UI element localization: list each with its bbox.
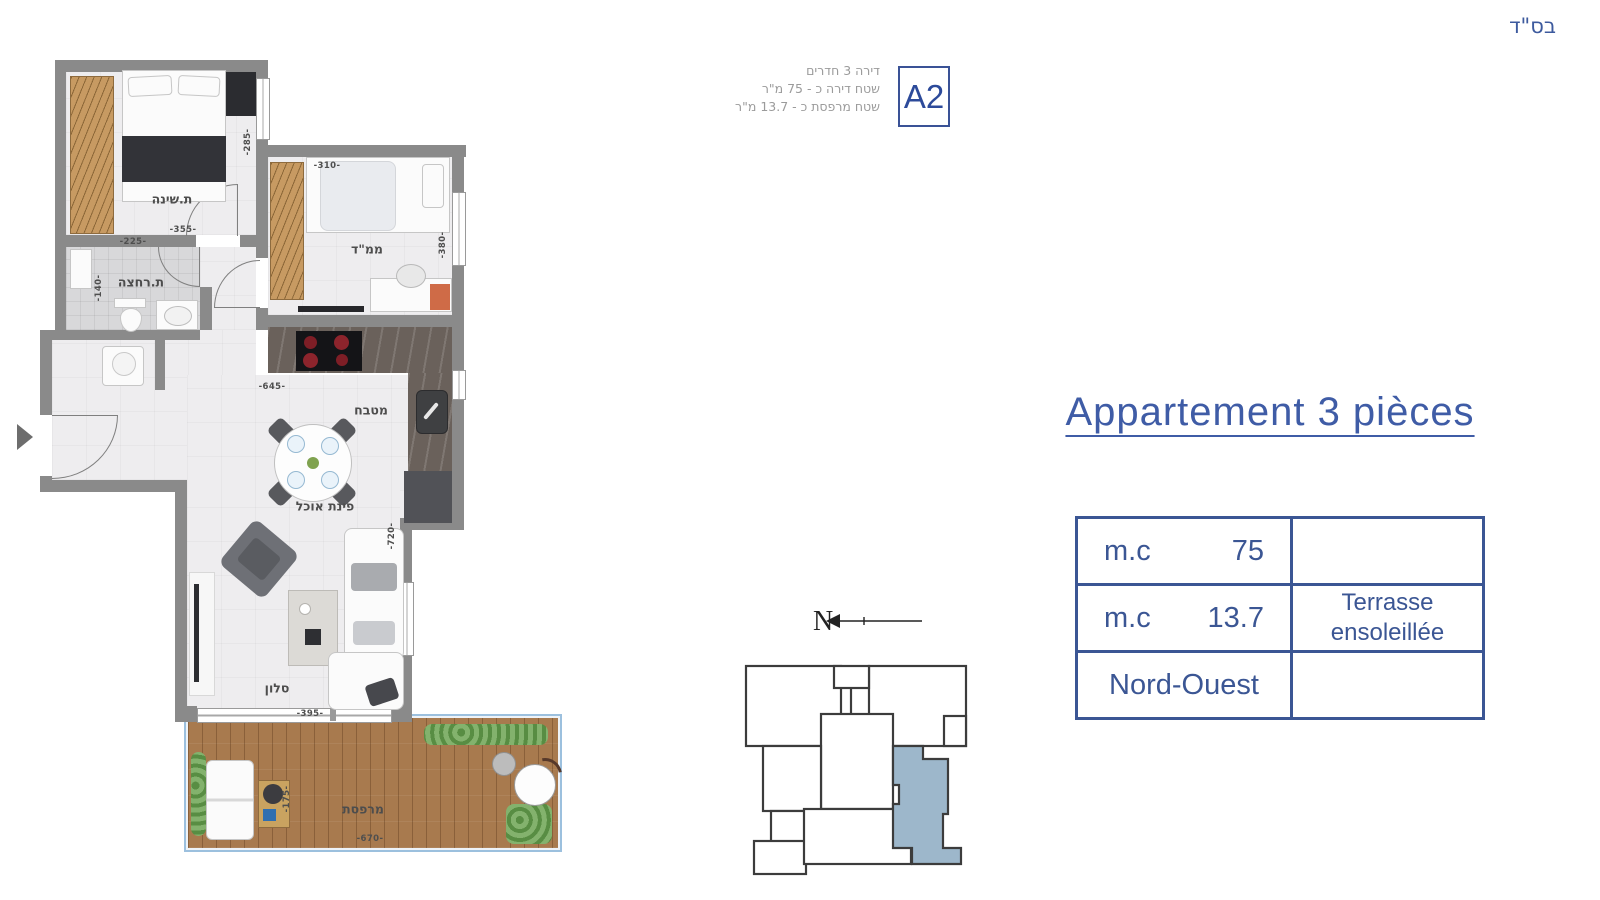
single-bed-duvet <box>320 161 396 231</box>
terrace-planter-corner <box>506 804 552 844</box>
pillow-right <box>178 75 221 97</box>
plate-1 <box>287 435 305 453</box>
wall-mamad-bottom <box>256 315 464 327</box>
wall-living-bottom-post-left <box>175 706 197 722</box>
dim-kitchen-width: -645- <box>259 382 286 392</box>
kitchen-sink <box>416 390 448 434</box>
terrace-planter-top <box>424 724 548 745</box>
terrace-planter-left <box>191 752 206 836</box>
dim-living-height: -720- <box>387 523 397 550</box>
mamad-chair <box>396 264 426 288</box>
page: בס"ד דירה 3 חדרים שטח דירה כ - 75 מ"ר שט… <box>0 0 1600 900</box>
dim-bathroom-width: -225- <box>120 237 147 247</box>
sofa-chaise <box>328 652 404 710</box>
wall-bathroom-right <box>200 287 212 330</box>
spec-row2-note: Terrasse ensoleillée <box>1293 586 1482 650</box>
page-title: Appartement 3 pièces <box>1050 390 1490 435</box>
spec-row1-note <box>1293 519 1482 583</box>
sofa-cushion-1 <box>351 563 397 591</box>
pillow-left <box>128 75 173 97</box>
dining-label: פינת אוכל <box>296 499 355 514</box>
burner-3 <box>303 353 318 368</box>
coffee-table-tray <box>305 629 321 645</box>
fridge <box>404 471 452 523</box>
plate-3 <box>287 471 305 489</box>
wall-mamad-top <box>256 145 466 157</box>
plate-4 <box>321 471 339 489</box>
bedroom-label: ת.שינה <box>152 192 193 207</box>
spec-row2-value: 13.7 <box>1208 602 1264 635</box>
wall-left-upper <box>55 60 66 330</box>
wall-living-left <box>175 480 187 718</box>
dim-living-width: -395- <box>297 709 324 719</box>
wall-outer-left-lower <box>40 330 52 415</box>
wall-right-a <box>452 145 464 192</box>
dim-bedroom-width: -355- <box>170 225 197 235</box>
spec-row3-left: Nord-Ouest <box>1078 653 1290 717</box>
burner-2 <box>334 335 349 350</box>
stove <box>296 331 362 371</box>
plate-2 <box>321 437 339 455</box>
wall-bedroom-bottom-b <box>240 235 256 247</box>
sofa-cushion-2 <box>353 621 395 645</box>
wall-hall-bottom <box>40 480 180 492</box>
unit-desc-line3: שטח מרפסת כ - 13.7 מ"ר <box>690 98 880 116</box>
highlighted-unit <box>893 746 961 864</box>
north-arrow: N <box>813 606 922 637</box>
dim-mamad-width: -310- <box>314 161 341 171</box>
unit-description: דירה 3 חדרים שטח דירה כ - 75 מ"ר שטח מרפ… <box>690 62 880 116</box>
entry-opening <box>40 415 52 478</box>
unit-desc-line2: שטח דירה כ - 75 מ"ר <box>690 80 880 98</box>
washing-machine-door <box>112 352 136 376</box>
dining-table <box>274 424 352 502</box>
armchair-seat <box>236 537 281 582</box>
dim-mamad-height: -380- <box>438 232 448 259</box>
bathtub <box>70 249 92 289</box>
bedroom-wardrobe <box>70 76 114 234</box>
spec-table: m.c 75 m.c 13.7 Terrasse ensoleillée Nor… <box>1075 516 1485 720</box>
spec-row3-note <box>1293 653 1482 717</box>
burner-1 <box>304 336 317 349</box>
kitchen-label: מטבח <box>354 403 388 418</box>
wall-right-c <box>452 398 464 525</box>
bbq-box <box>263 809 276 821</box>
terrace-label: מרפסת <box>342 802 384 817</box>
mamad-shelf <box>430 284 450 310</box>
bedroom-window <box>256 78 270 140</box>
tv-console <box>189 572 215 696</box>
bathroom-sink-basin <box>164 306 192 326</box>
toilet-tank <box>114 298 146 308</box>
mamad-window <box>452 192 466 266</box>
tv-screen <box>194 584 199 682</box>
kitchen-faucet <box>423 402 439 420</box>
mamad-wardrobe <box>270 162 304 300</box>
unit-badge: A2 <box>898 66 950 127</box>
spec-row1-left: m.c 75 <box>1078 519 1290 583</box>
mamad-tv <box>298 306 364 312</box>
spec-row1-value: 75 <box>1232 535 1264 568</box>
unit-desc-line1: דירה 3 חדרים <box>690 62 880 80</box>
sofa-throw <box>364 677 399 707</box>
living-label: סלון <box>265 681 290 696</box>
wall-bedroom-right-a <box>256 60 268 78</box>
bedroom-dresser <box>226 72 256 116</box>
terrace-lounge <box>206 760 254 840</box>
building-key-plan: N <box>716 586 970 876</box>
bathroom-label: ת.רחצה <box>118 275 164 290</box>
spec-row2-label: m.c <box>1104 602 1151 635</box>
living-sliding-door <box>197 708 392 723</box>
centerpiece <box>307 457 319 469</box>
bsd-text: בס"ד <box>1468 14 1556 38</box>
floorplan: ת.שינה ממ"ד ת.רחצה מטבח פינת אוכל סלון מ… <box>0 0 600 900</box>
dim-bedroom-height: -285- <box>243 129 253 156</box>
mamad-label: ממ"ד <box>351 242 383 257</box>
dim-terrace-width: -670- <box>357 834 384 844</box>
wall-bathroom-bottom <box>40 330 200 340</box>
burner-4 <box>336 354 348 366</box>
kitchen-window <box>452 370 466 400</box>
spec-row2-left: m.c 13.7 <box>1078 586 1290 650</box>
single-bed-pillow <box>422 164 444 208</box>
entry-arrow-icon <box>17 424 33 450</box>
dim-bathroom-height: -140- <box>94 275 104 302</box>
spec-row1-label: m.c <box>1104 535 1151 568</box>
bbq-grill <box>263 784 283 804</box>
dim-terrace-height: -175- <box>282 786 292 813</box>
coffee-table-cup <box>299 603 311 615</box>
bed-blanket <box>122 136 226 182</box>
wall-washer-stub <box>155 340 165 390</box>
terrace-chair <box>492 752 516 776</box>
